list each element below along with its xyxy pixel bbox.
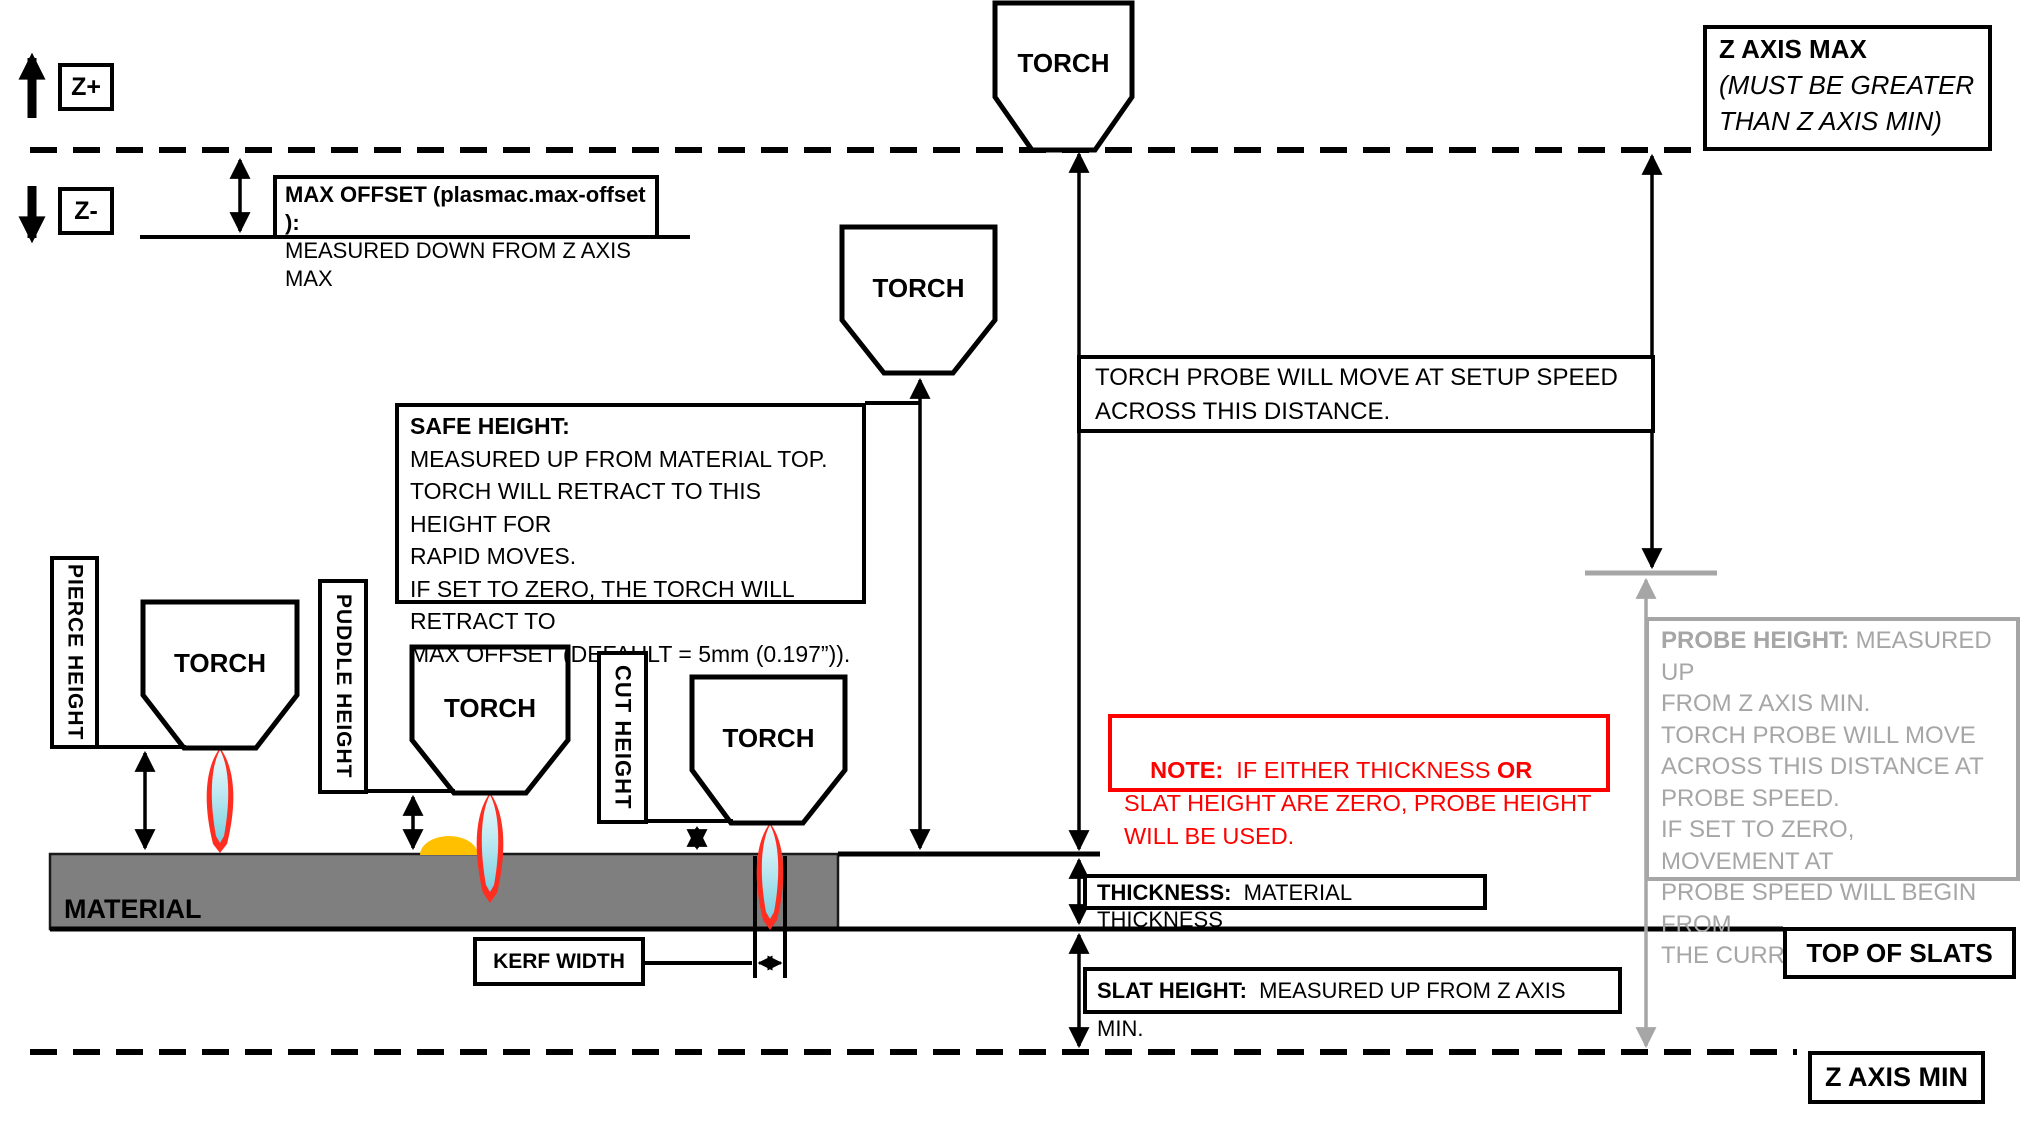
plasmac-height-diagram: Z+ Z- MAX OFFSET (plasmac.max-offset ): … [0,0,2038,1145]
thickness-box: THICKNESS: MATERIAL THICKNESS [1083,874,1487,910]
cut-height-label-box: CUT HEIGHT [597,651,648,824]
torch-label-probe-start: TORCH [995,48,1132,79]
slat-height-box: SLAT HEIGHT: MEASURED UP FROM Z AXIS MIN… [1083,967,1622,1014]
molten-puddle [420,836,478,855]
note-box: NOTE: IF EITHER THICKNESS OR SLAT HEIGHT… [1108,714,1610,792]
thickness-title: THICKNESS: [1097,880,1231,905]
z-minus-label: Z- [74,197,98,226]
puddle-height-label: PUDDLE HEIGHT [331,594,355,779]
torch-label-puddle: TORCH [412,693,568,724]
puddle-height-label-box: PUDDLE HEIGHT [318,579,368,794]
safe-height-title: SAFE HEIGHT: [410,413,570,439]
max-offset-box: MAX OFFSET (plasmac.max-offset ): MEASUR… [273,175,659,239]
top-of-slats-label: TOP OF SLATS [1806,938,1992,969]
top-of-slats-box: TOP OF SLATS [1783,927,2016,979]
torch-label-pierce: TORCH [143,648,297,679]
z-axis-min-label: Z AXIS MIN [1825,1062,1968,1093]
z-axis-min-box: Z AXIS MIN [1808,1051,1985,1104]
material-label: MATERIAL [64,894,201,925]
note-title: NOTE: [1150,757,1223,783]
z-plus-label-box: Z+ [58,63,114,111]
max-offset-title: MAX OFFSET (plasmac.max-offset ): [285,182,646,235]
probe-height-title: PROBE HEIGHT: [1661,627,1849,654]
diagram-artwork [0,0,2038,1145]
z-plus-label: Z+ [71,73,101,102]
kerf-width-label: KERF WIDTH [493,950,625,974]
z-axis-max-title: Z AXIS MAX [1719,34,1867,64]
z-minus-label-box: Z- [58,187,114,235]
z-axis-max-box: Z AXIS MAX (MUST BE GREATER THAN Z AXIS … [1703,25,1992,151]
pierce-flame [207,748,234,853]
kerf-width-box: KERF WIDTH [473,937,645,986]
note-or: OR [1497,757,1532,783]
safe-height-box: SAFE HEIGHT: MEASURED UP FROM MATERIAL T… [395,403,866,604]
cut-height-label: CUT HEIGHT [610,665,636,809]
torch-label-cut: TORCH [692,723,845,754]
probe-height-box: PROBE HEIGHT: MEASURED UP FROM Z AXIS MI… [1645,617,2020,881]
torch-label-safe-height: TORCH [842,273,995,304]
torch-probe-text: TORCH PROBE WILL MOVE AT SETUP SPEED ACR… [1095,364,1618,425]
slat-height-title: SLAT HEIGHT: [1097,978,1247,1003]
torch-probe-box: TORCH PROBE WILL MOVE AT SETUP SPEED ACR… [1077,355,1655,433]
note-text-1: IF EITHER THICKNESS [1223,757,1497,783]
z-axis-max-text: (MUST BE GREATER THAN Z AXIS MIN) [1719,70,1974,136]
pierce-height-label: PIERCE HEIGHT [63,564,87,740]
pierce-height-label-box: PIERCE HEIGHT [50,556,99,749]
